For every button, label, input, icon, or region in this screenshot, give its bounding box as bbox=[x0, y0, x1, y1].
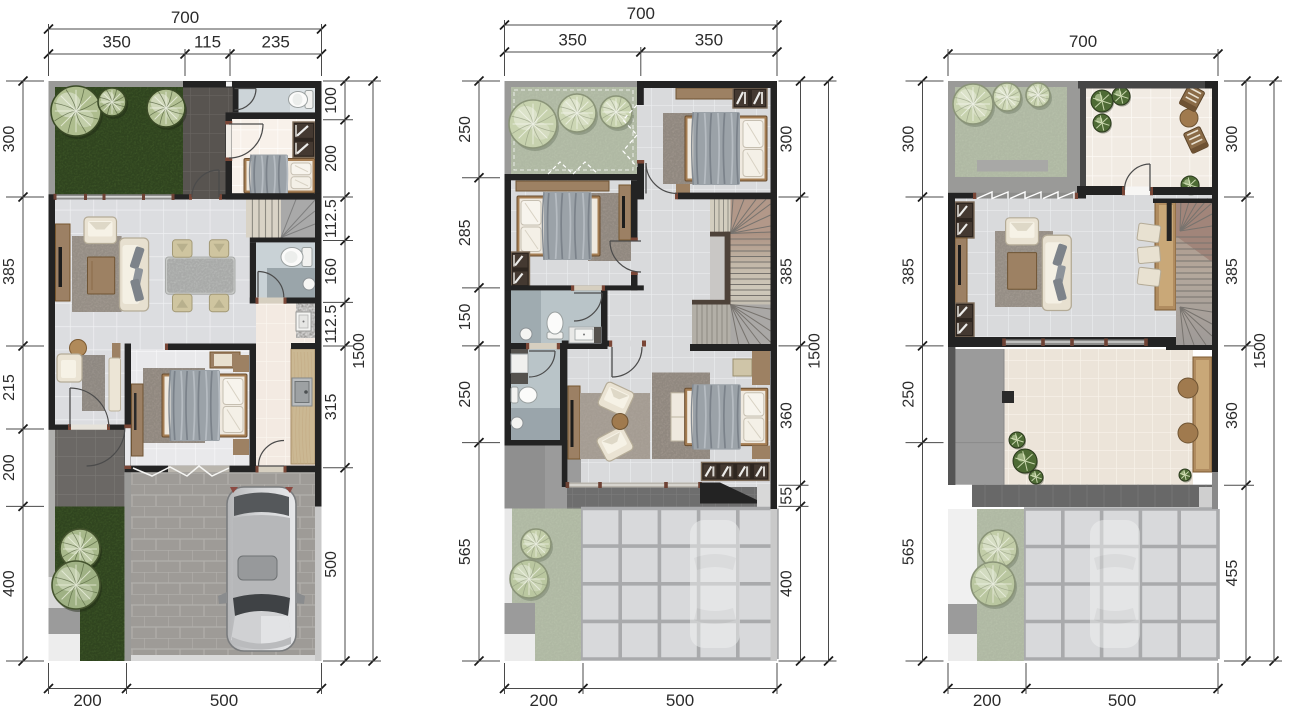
svg-text:200: 200 bbox=[73, 691, 101, 710]
svg-text:350: 350 bbox=[695, 31, 723, 50]
svg-text:385: 385 bbox=[779, 258, 796, 285]
svg-text:315: 315 bbox=[323, 393, 340, 420]
svg-text:250: 250 bbox=[457, 116, 474, 143]
svg-text:500: 500 bbox=[666, 691, 694, 710]
svg-text:1500: 1500 bbox=[351, 333, 368, 369]
svg-text:700: 700 bbox=[627, 4, 655, 23]
svg-text:200: 200 bbox=[973, 691, 1001, 710]
svg-text:565: 565 bbox=[457, 538, 474, 565]
svg-text:350: 350 bbox=[558, 31, 586, 50]
svg-text:300: 300 bbox=[779, 126, 796, 153]
svg-text:300: 300 bbox=[901, 126, 918, 153]
svg-text:350: 350 bbox=[103, 33, 131, 52]
svg-text:500: 500 bbox=[1108, 691, 1136, 710]
svg-text:112.5: 112.5 bbox=[323, 305, 340, 344]
svg-text:700: 700 bbox=[1069, 32, 1097, 51]
svg-text:385: 385 bbox=[901, 258, 918, 285]
svg-text:400: 400 bbox=[1, 570, 18, 597]
svg-text:215: 215 bbox=[1, 374, 18, 401]
svg-text:500: 500 bbox=[323, 551, 340, 578]
svg-text:700: 700 bbox=[171, 8, 199, 27]
svg-text:385: 385 bbox=[1224, 258, 1241, 285]
svg-text:385: 385 bbox=[1, 258, 18, 285]
svg-text:500: 500 bbox=[210, 691, 238, 710]
svg-text:115: 115 bbox=[194, 33, 221, 52]
svg-text:285: 285 bbox=[457, 219, 474, 246]
svg-text:160: 160 bbox=[323, 258, 340, 285]
svg-text:100: 100 bbox=[323, 87, 340, 114]
svg-text:235: 235 bbox=[262, 33, 290, 52]
svg-text:1500: 1500 bbox=[1252, 333, 1269, 369]
svg-text:150: 150 bbox=[457, 303, 474, 330]
svg-text:200: 200 bbox=[323, 145, 340, 172]
svg-text:360: 360 bbox=[1224, 402, 1241, 429]
svg-text:250: 250 bbox=[457, 381, 474, 408]
svg-text:250: 250 bbox=[901, 381, 918, 408]
svg-text:300: 300 bbox=[1224, 126, 1241, 153]
svg-text:112.5: 112.5 bbox=[323, 199, 340, 238]
svg-text:55: 55 bbox=[779, 487, 796, 505]
svg-text:455: 455 bbox=[1224, 560, 1241, 587]
svg-text:200: 200 bbox=[1, 454, 18, 481]
svg-text:200: 200 bbox=[530, 691, 558, 710]
svg-text:300: 300 bbox=[1, 126, 18, 153]
svg-text:360: 360 bbox=[779, 402, 796, 429]
svg-text:565: 565 bbox=[901, 538, 918, 565]
svg-text:1500: 1500 bbox=[807, 333, 824, 369]
svg-text:400: 400 bbox=[779, 570, 796, 597]
